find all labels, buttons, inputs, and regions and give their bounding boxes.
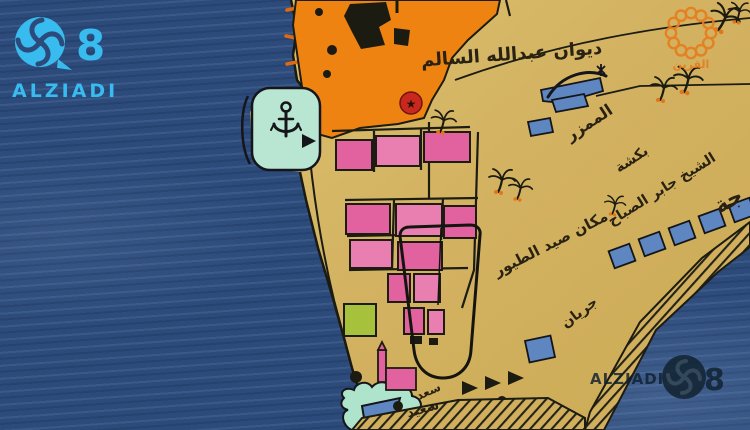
channel-name: القرين bbox=[673, 58, 710, 71]
kuwait-map-canvas: ★ bbox=[0, 0, 750, 430]
watermark-wordmark: ALZIADI bbox=[590, 370, 664, 388]
q8-eight: 8 bbox=[76, 21, 105, 70]
star-badge: ★ bbox=[400, 92, 422, 114]
alziadi-wordmark: ALZIADI bbox=[12, 80, 118, 102]
q8-alziadi-logo: 8 ALZIADI bbox=[12, 17, 118, 102]
harbor bbox=[242, 88, 320, 170]
star-icon: ★ bbox=[406, 97, 417, 111]
green-field bbox=[344, 304, 376, 336]
watermark-eight: 8 bbox=[704, 363, 725, 398]
tv-frame: ★ bbox=[0, 0, 750, 430]
breakwater bbox=[242, 96, 250, 164]
